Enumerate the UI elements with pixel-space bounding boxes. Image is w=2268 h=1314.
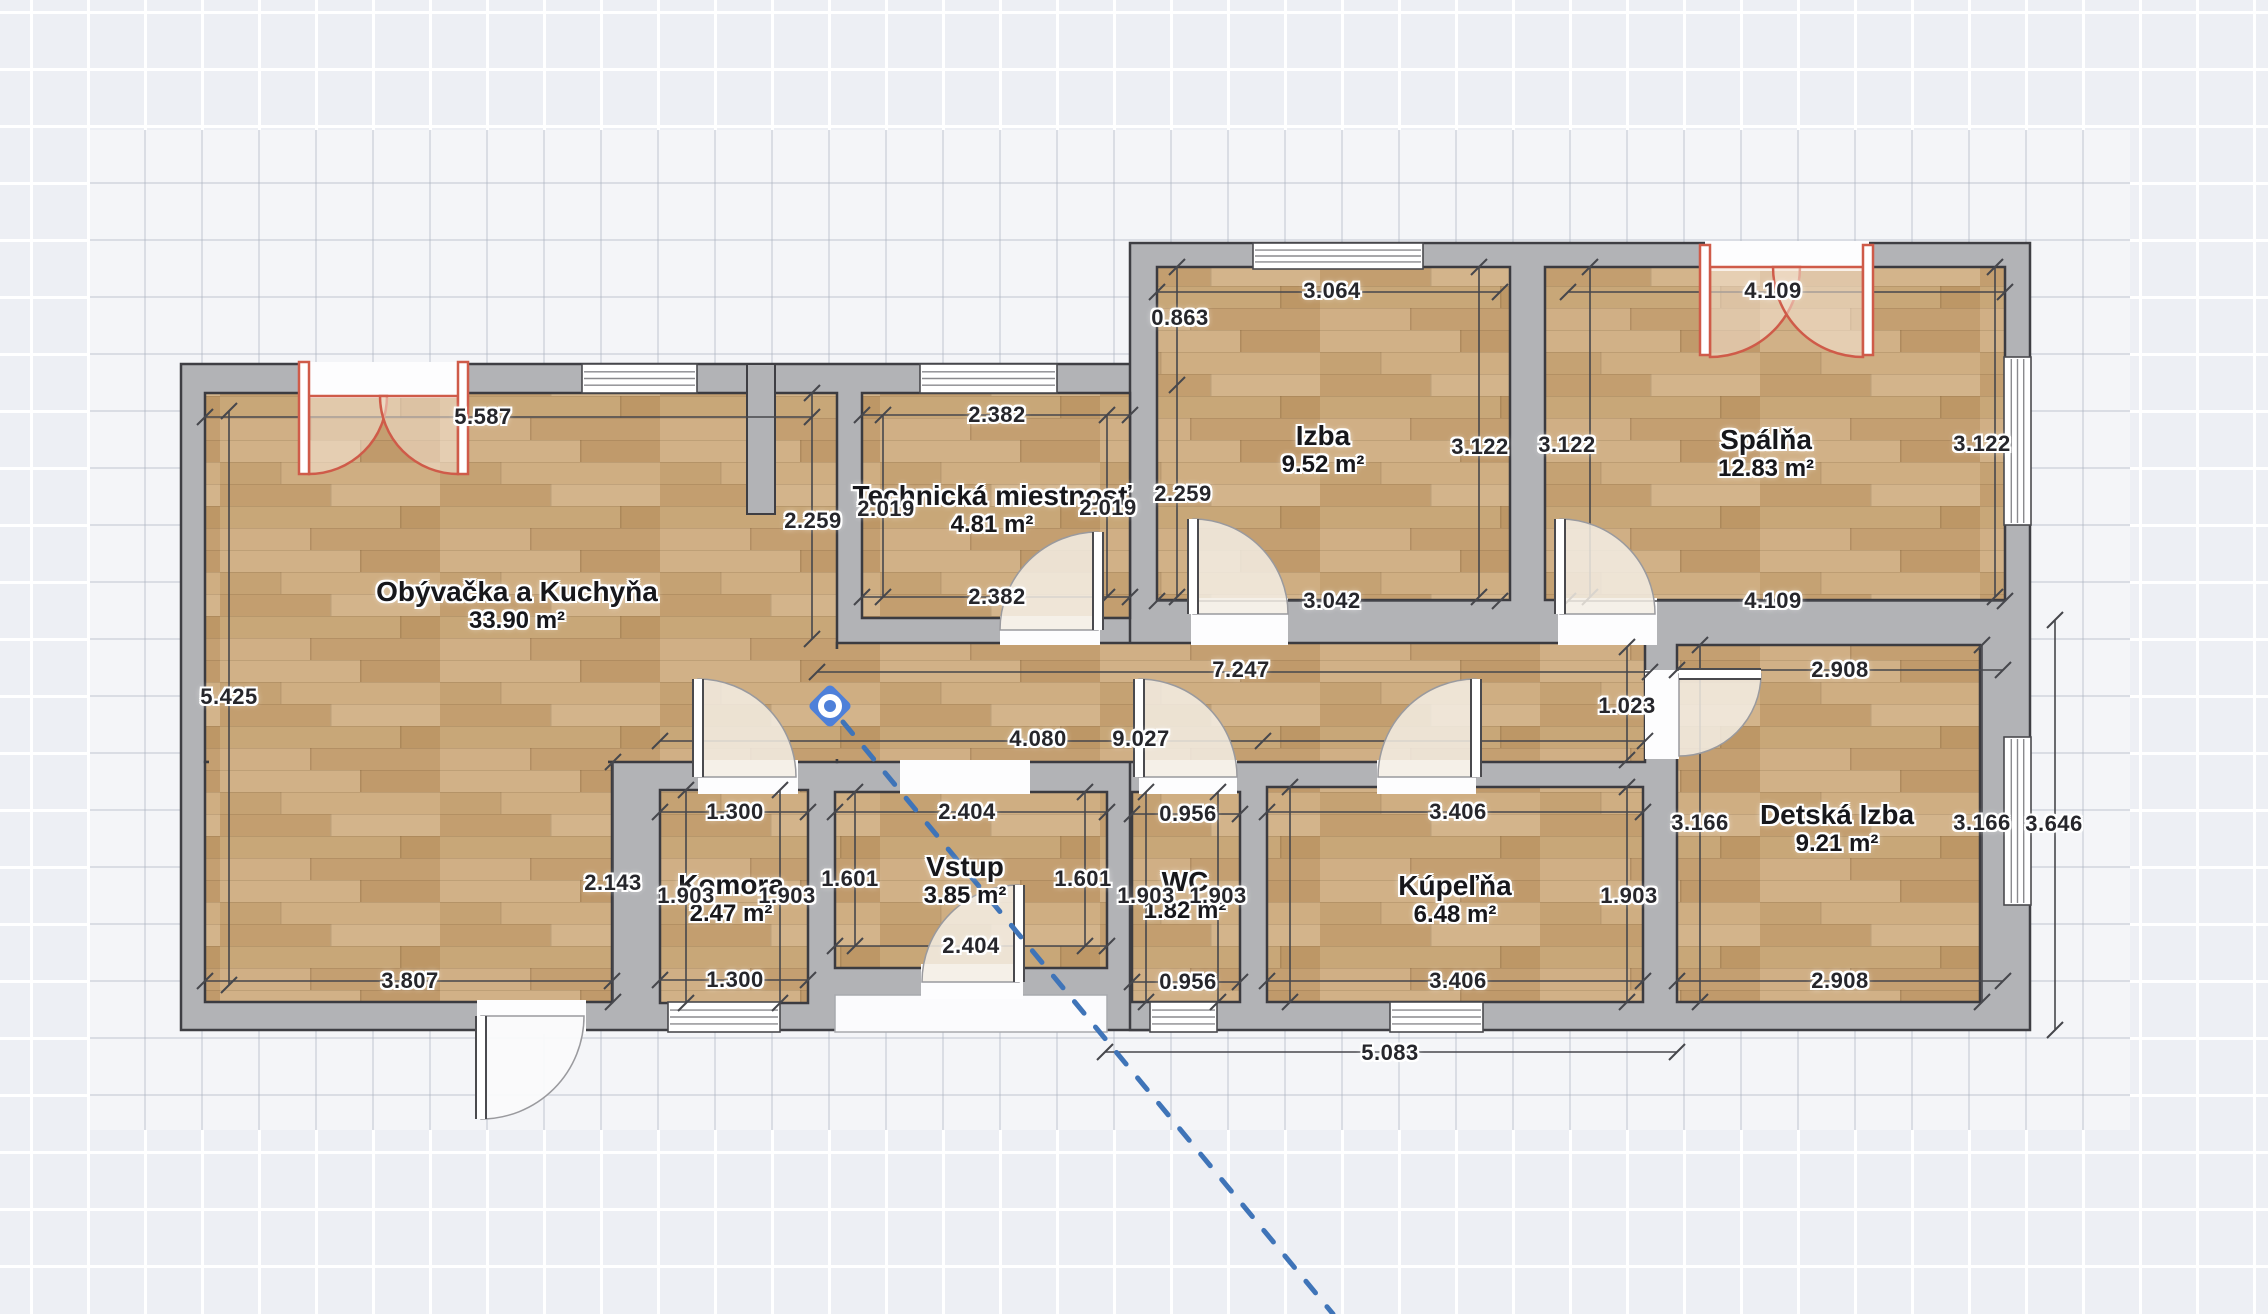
- window-komora-bottom[interactable]: [668, 1002, 780, 1032]
- door-exterior[interactable]: [481, 1016, 584, 1119]
- floor-room-6[interactable]: [1132, 792, 1240, 1002]
- camera-viewpoint-marker[interactable]: [811, 687, 849, 725]
- window-spalna-right[interactable]: [2004, 357, 2031, 525]
- floor-patch: [209, 756, 608, 768]
- wall-stub[interactable]: [747, 364, 775, 514]
- window-izba-top[interactable]: [1253, 243, 1423, 269]
- floor-room-0[interactable]: [205, 762, 612, 1002]
- window-detska-right[interactable]: [2004, 737, 2031, 905]
- window-wc-bottom[interactable]: [1150, 1002, 1217, 1032]
- wall-opening: [300, 362, 468, 398]
- wall-opening: [1645, 670, 1679, 759]
- floor-room-4[interactable]: [660, 790, 808, 1003]
- floor-corridor[interactable]: [837, 643, 1645, 762]
- entry-porch: [835, 995, 1107, 1032]
- floorplan-canvas[interactable]: Obývačka a Kuchyňa33.90 m²Technická mies…: [0, 0, 2268, 1314]
- camera-dot-icon: [824, 700, 836, 712]
- floor-room-7[interactable]: [1267, 787, 1643, 1002]
- window-kupelna-bottom[interactable]: [1390, 1002, 1483, 1032]
- window-living-top[interactable]: [582, 364, 697, 393]
- floorplan-drawing: [0, 0, 2268, 1314]
- wall-opening: [900, 760, 1030, 794]
- window-technical-top[interactable]: [920, 364, 1057, 393]
